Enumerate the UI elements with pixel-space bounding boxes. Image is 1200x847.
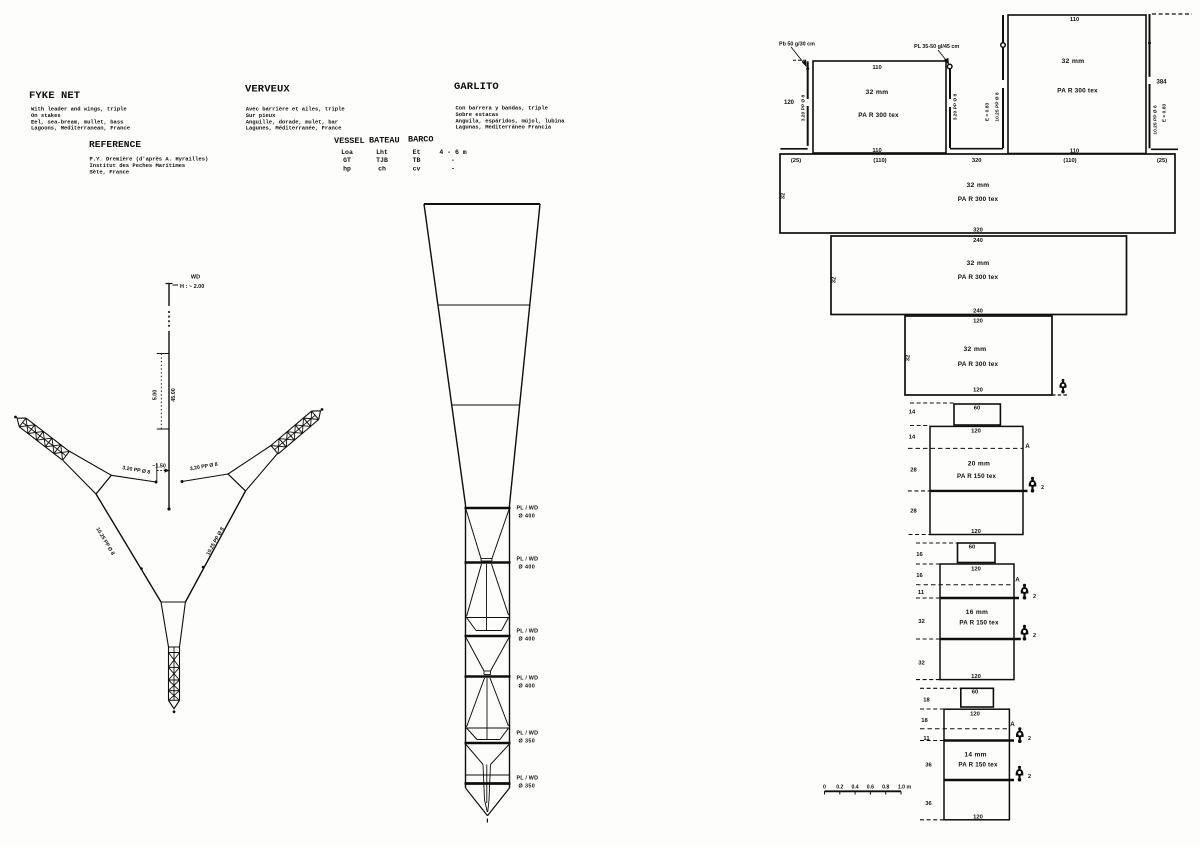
svg-text:320: 320 [972, 158, 982, 164]
svg-text:3.20 PP Ø 8: 3.20 PP Ø 8 [801, 94, 807, 121]
svg-text:32 mm: 32 mm [966, 260, 989, 267]
svg-text:10.25 PP Ø 8: 10.25 PP Ø 8 [995, 92, 1001, 122]
svg-text:WD: WD [191, 275, 200, 281]
svg-text:Et: Et [413, 149, 421, 156]
svg-text:PA R 300 tex: PA R 300 tex [1057, 88, 1098, 95]
svg-text:240: 240 [973, 309, 983, 315]
svg-text:2: 2 [1041, 485, 1044, 491]
svg-text:PL / WD: PL / WD [517, 731, 539, 737]
svg-text:Lagoons, Mediterranean, France: Lagoons, Mediterranean, France [31, 125, 131, 132]
svg-text:0.2: 0.2 [836, 785, 843, 791]
svg-text:PL 35-50 gl/45 cm: PL 35-50 gl/45 cm [914, 44, 959, 50]
svg-text:VERVEUX: VERVEUX [245, 84, 290, 96]
svg-text:28: 28 [910, 468, 917, 474]
svg-text:32: 32 [918, 619, 924, 625]
svg-text:20 mm: 20 mm [968, 461, 990, 468]
svg-text:Loa: Loa [341, 149, 353, 156]
svg-text:(25): (25) [791, 158, 801, 164]
svg-text:ch: ch [378, 165, 386, 172]
svg-text:(110): (110) [873, 158, 886, 164]
svg-text:PA R 150 tex: PA R 150 tex [958, 762, 998, 769]
svg-text:REFERENCE: REFERENCE [89, 139, 141, 150]
svg-text:Ø 400: Ø 400 [519, 514, 536, 520]
svg-text:110: 110 [872, 65, 881, 71]
svg-text:0.6: 0.6 [867, 785, 874, 791]
svg-text:E = 0.83: E = 0.83 [1162, 104, 1168, 123]
svg-text:18: 18 [923, 698, 930, 704]
svg-text:A: A [1025, 443, 1030, 450]
svg-text:28: 28 [910, 509, 917, 515]
svg-text:PA R 300 tex: PA R 300 tex [958, 361, 999, 368]
svg-text:Ø 350: Ø 350 [519, 784, 536, 790]
svg-text:Ø 350: Ø 350 [519, 739, 536, 745]
svg-text:hp: hp [343, 165, 351, 172]
svg-text:~1.50: ~1.50 [152, 464, 166, 470]
svg-text:32: 32 [781, 193, 787, 199]
svg-text:FYKE NET: FYKE NET [29, 90, 80, 102]
svg-text:120: 120 [971, 429, 981, 435]
svg-text:11: 11 [918, 590, 925, 596]
svg-text:Ø 400: Ø 400 [519, 684, 536, 690]
svg-text:2: 2 [1028, 774, 1031, 780]
svg-text:32 mm: 32 mm [1061, 58, 1084, 65]
svg-text:32 mm: 32 mm [963, 346, 986, 353]
svg-text:36: 36 [925, 763, 932, 769]
svg-text:18: 18 [921, 718, 928, 724]
svg-text:45.00: 45.00 [171, 388, 177, 402]
svg-text:Lht: Lht [376, 149, 388, 156]
svg-text:4 - 6 m: 4 - 6 m [439, 149, 466, 156]
svg-text:-: - [451, 165, 455, 172]
svg-text:PA R 300 tex: PA R 300 tex [958, 196, 999, 203]
svg-text:TJB: TJB [376, 157, 388, 164]
svg-text:PA R 300 tex: PA R 300 tex [858, 112, 899, 119]
svg-text:PL / WD: PL / WD [517, 776, 539, 782]
svg-text:VESSEL: VESSEL [334, 136, 365, 146]
svg-text:A: A [1015, 577, 1020, 584]
svg-text:E = 0.83: E = 0.83 [985, 103, 991, 122]
svg-text:10.25 PP Ø 8: 10.25 PP Ø 8 [1153, 105, 1159, 135]
svg-text:16 mm: 16 mm [966, 609, 988, 616]
svg-text:BATEAU: BATEAU [369, 136, 400, 146]
svg-text:Ø 400: Ø 400 [519, 565, 536, 571]
svg-text:GARLITO: GARLITO [454, 81, 499, 93]
svg-text:GT: GT [343, 157, 351, 164]
svg-text:120: 120 [784, 100, 795, 106]
svg-text:0.8: 0.8 [882, 785, 889, 791]
svg-text:120: 120 [973, 388, 983, 394]
svg-text:5.00: 5.00 [153, 390, 159, 401]
svg-text:Ø 400: Ø 400 [519, 637, 536, 643]
svg-text:320: 320 [973, 228, 983, 234]
svg-text:2: 2 [1028, 736, 1031, 742]
svg-text:(25): (25) [1157, 158, 1167, 164]
svg-text:PL / WD: PL / WD [517, 629, 539, 635]
svg-text:-: - [451, 157, 455, 164]
svg-text:110: 110 [872, 148, 881, 154]
svg-text:32: 32 [906, 355, 912, 361]
svg-text:(110): (110) [1063, 158, 1076, 164]
svg-text:36: 36 [925, 801, 932, 807]
svg-text:0: 0 [823, 785, 826, 791]
svg-text:240: 240 [973, 238, 983, 244]
svg-text:2: 2 [1033, 633, 1036, 639]
svg-text:120: 120 [973, 815, 983, 821]
svg-text:BARCO: BARCO [408, 135, 434, 145]
svg-text:120: 120 [971, 567, 981, 573]
svg-text:1.0 m: 1.0 m [898, 785, 912, 791]
svg-text:60: 60 [972, 690, 978, 696]
svg-text:PL / WD: PL / WD [517, 557, 539, 563]
svg-text:14: 14 [909, 410, 916, 416]
svg-text:120: 120 [970, 712, 980, 718]
svg-text:32: 32 [832, 277, 838, 283]
svg-text:Lagunes, Méditerranée, France: Lagunes, Méditerranée, France [246, 125, 342, 132]
svg-text:0.4: 0.4 [851, 785, 858, 791]
svg-text:32 mm: 32 mm [865, 89, 888, 96]
svg-text:cv: cv [413, 165, 421, 172]
svg-text:60: 60 [969, 545, 975, 551]
svg-text:3.20 PP Ø 8: 3.20 PP Ø 8 [953, 93, 959, 120]
svg-text:PA R 150 tex: PA R 150 tex [957, 473, 997, 480]
svg-text:120: 120 [971, 529, 981, 535]
svg-text:384: 384 [1157, 80, 1168, 86]
svg-text:2: 2 [1033, 594, 1036, 600]
svg-text:PA R 300 tex: PA R 300 tex [958, 274, 999, 281]
svg-text:32 mm: 32 mm [966, 182, 989, 189]
svg-text:110: 110 [1070, 17, 1079, 23]
svg-text:PL / WD: PL / WD [517, 676, 539, 682]
svg-text:14: 14 [909, 435, 916, 441]
svg-text:14 mm: 14 mm [964, 752, 986, 759]
svg-text:PA R 150 tex: PA R 150 tex [959, 620, 999, 627]
svg-text:32: 32 [918, 661, 924, 667]
svg-text:120: 120 [973, 319, 983, 325]
svg-text:Sète, France: Sète, France [90, 168, 130, 175]
svg-text:Pb 50 g/30 cm: Pb 50 g/30 cm [779, 41, 815, 47]
svg-text:H : ~ 2.00: H : ~ 2.00 [180, 284, 204, 290]
svg-text:TB: TB [413, 157, 421, 164]
svg-text:16: 16 [916, 552, 923, 558]
svg-text:A: A [1010, 721, 1015, 728]
svg-text:60: 60 [974, 406, 980, 412]
svg-text:Lagunas, Mediterráneo Francia: Lagunas, Mediterráneo Francia [456, 124, 552, 131]
svg-text:PL / WD: PL / WD [517, 506, 539, 512]
svg-text:16: 16 [916, 573, 923, 579]
svg-text:120: 120 [971, 674, 981, 680]
svg-text:11: 11 [923, 736, 930, 742]
